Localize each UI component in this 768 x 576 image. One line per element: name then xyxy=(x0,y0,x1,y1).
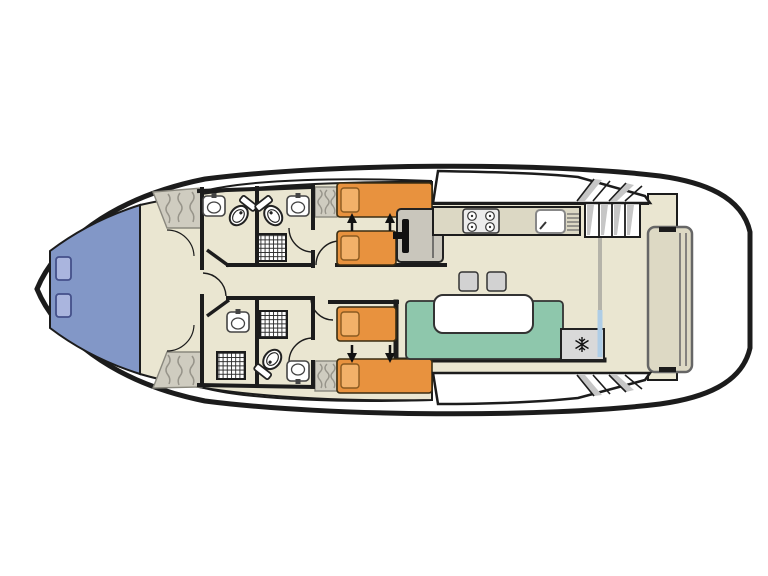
single-bed xyxy=(337,359,432,393)
stern-bench xyxy=(648,227,692,372)
bed-pillow xyxy=(341,312,359,336)
stool xyxy=(487,272,506,291)
single-bed xyxy=(337,307,396,341)
washbasin xyxy=(287,193,309,216)
bow-double-bed xyxy=(50,205,140,374)
bow-pillow xyxy=(56,294,71,317)
bed-pillow xyxy=(341,364,359,388)
washbasin xyxy=(203,193,225,216)
galley xyxy=(433,207,580,235)
bed-pillow xyxy=(341,188,359,212)
bow-pillow xyxy=(56,257,71,280)
stairs-to-top-deck xyxy=(585,203,640,237)
kitchen-sink xyxy=(536,210,579,233)
stove xyxy=(463,209,499,233)
steering-wheel xyxy=(402,219,409,253)
boat-floor-plan xyxy=(0,0,768,576)
washbasin xyxy=(287,361,309,384)
single-bed xyxy=(337,231,396,265)
dining-table xyxy=(434,295,533,333)
shower xyxy=(258,234,286,261)
wardrobe xyxy=(315,361,337,391)
bed-pillow xyxy=(341,236,359,260)
bow-cabin xyxy=(50,205,140,374)
stool xyxy=(459,272,478,291)
floor-plan-svg xyxy=(0,0,768,576)
steering-column xyxy=(393,232,402,239)
wardrobe xyxy=(315,187,337,217)
shower xyxy=(260,311,287,338)
washbasin xyxy=(227,309,249,332)
shower xyxy=(217,352,245,379)
